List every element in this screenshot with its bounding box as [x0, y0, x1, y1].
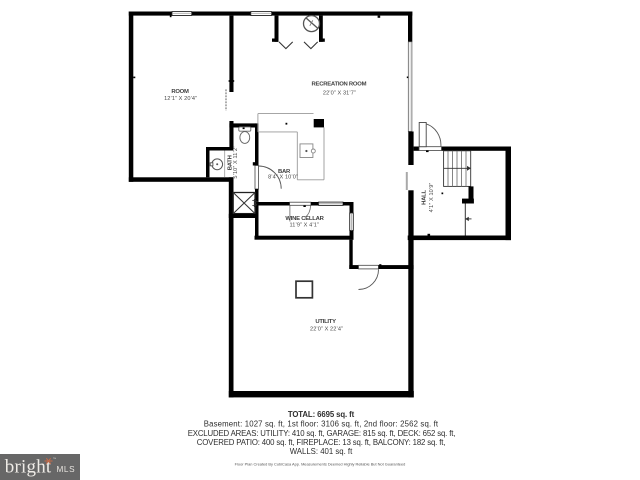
svg-text:5’10” X 11’2”: 5’10” X 11’2” — [233, 146, 239, 179]
svg-text:™: ™ — [53, 457, 57, 461]
svg-text:Basement: 1027 sq. ft, 1st flo: Basement: 1027 sq. ft, 1st floor: 3106 s… — [204, 420, 439, 429]
svg-text:COVERED PATIO: 400 sq. ft, FIR: COVERED PATIO: 400 sq. ft, FIREPLACE: 13… — [197, 438, 446, 447]
svg-text:11’9” X 4’1”: 11’9” X 4’1” — [290, 222, 319, 228]
svg-text:WALLS: 401 sq. ft: WALLS: 401 sq. ft — [290, 447, 353, 456]
svg-text:WINE CELLAR: WINE CELLAR — [285, 216, 324, 222]
svg-text:MLS: MLS — [57, 465, 76, 474]
svg-text:ROOM: ROOM — [171, 89, 189, 95]
svg-text:UTILITY: UTILITY — [315, 319, 336, 325]
svg-text:TOTAL: 6695 sq. ft: TOTAL: 6695 sq. ft — [288, 410, 355, 419]
svg-text:HALL: HALL — [422, 190, 428, 205]
svg-text:12’1” X 20’4”: 12’1” X 20’4” — [164, 96, 197, 102]
svg-text:Floor Plan Created By CubiCasa: Floor Plan Created By CubiCasa App. Meas… — [235, 462, 406, 467]
svg-text:4’1” X 10’9”: 4’1” X 10’9” — [429, 183, 435, 213]
svg-text:bright: bright — [5, 457, 52, 478]
svg-text:8’4” X 10’0”: 8’4” X 10’0” — [268, 175, 298, 181]
svg-text:22’0” X 22’4”: 22’0” X 22’4” — [310, 326, 343, 332]
svg-text:RECREATION ROOM: RECREATION ROOM — [312, 82, 367, 88]
svg-text:22’0” X 31’7”: 22’0” X 31’7” — [323, 90, 356, 96]
svg-text:EXCLUDED AREAS: UTILITY: 410 s: EXCLUDED AREAS: UTILITY: 410 sq. ft, GAR… — [188, 429, 456, 438]
